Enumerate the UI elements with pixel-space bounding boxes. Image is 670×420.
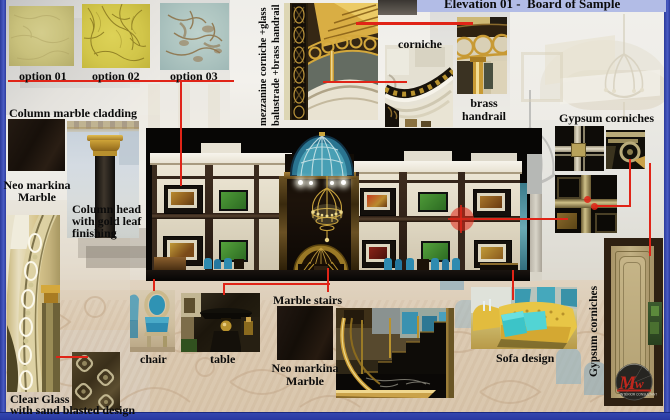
svg-text:INTERIOR CONSULTANT: INTERIOR CONSULTANT (620, 393, 657, 397)
svg-text:w: w (635, 376, 644, 391)
